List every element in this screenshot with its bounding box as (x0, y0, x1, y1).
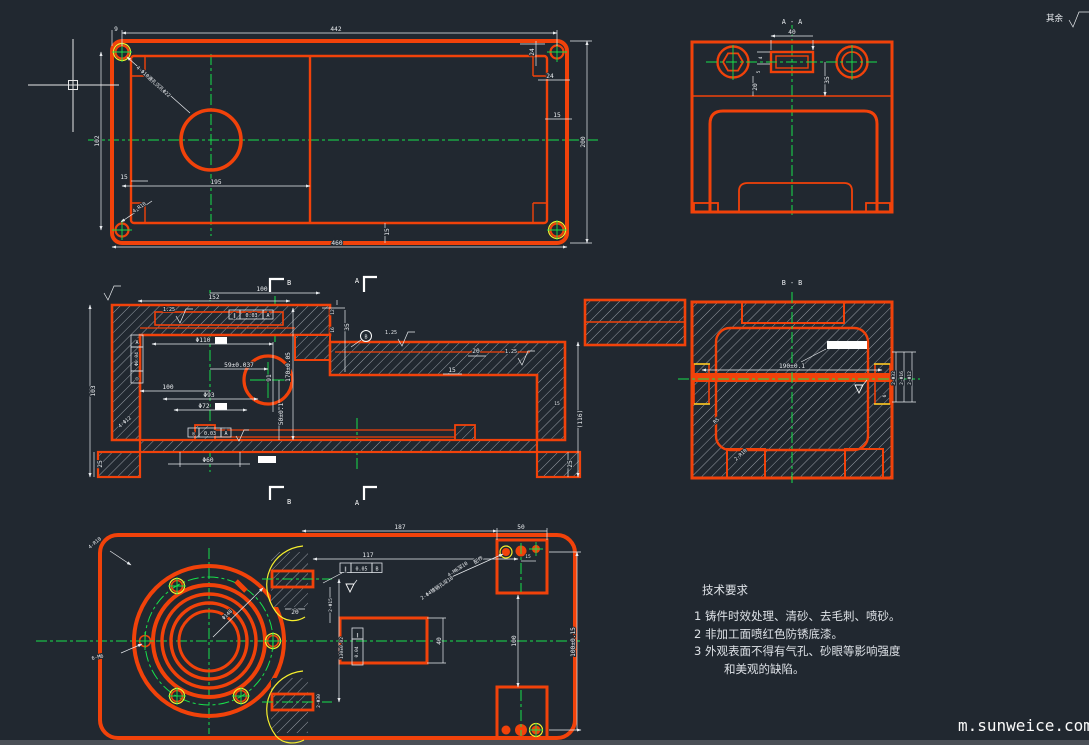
section-marker-b: B (287, 279, 291, 287)
section-marker-b: B (287, 498, 291, 506)
dim-label: 187 (394, 524, 405, 531)
dim-label: 15 (120, 174, 128, 181)
tech-req-line: 2 非加工面喷红色防锈底漆。 (694, 626, 974, 644)
dim-label: 40 (788, 29, 796, 36)
dim-label: Φ110 (196, 337, 211, 344)
dim-label: 15 (553, 112, 561, 119)
viewport-bottom-strip (0, 740, 1089, 745)
dim-label: (116) (577, 410, 584, 429)
gdt-value: 0.03 (245, 313, 257, 319)
dim-label: 5 (756, 70, 762, 73)
dim-label: 100 (511, 635, 518, 646)
tech-req-title: 技术要求 (702, 582, 974, 600)
gdt-symbol: ∥ (356, 633, 358, 639)
gdt-value: 0.05 (355, 567, 367, 573)
dim-label: 2-Φ32 (891, 371, 897, 385)
dim-label: Φ93 (203, 392, 214, 399)
dim-label: 130±0.02 (339, 637, 345, 659)
tech-req-line: 和美观的缺陷。 (724, 661, 974, 679)
roughness-label: 1.25 (505, 349, 517, 355)
dim-label: 2-Φ16 (899, 371, 905, 385)
note-label: 其余 (1046, 13, 1064, 24)
roughness-label: 1.25 (385, 330, 397, 336)
dim-label: Φ60 (202, 457, 213, 464)
tech-req-line: 1 铸件时效处理、清砂、去毛刺、喷砂。 (694, 608, 974, 626)
dim-label: 15 (448, 367, 456, 374)
dim-label: 50±0.1 (278, 403, 285, 426)
gdt-symbol: ∥ (233, 313, 236, 319)
dim-label: 170±0.05 (285, 352, 292, 382)
dim-label: 20 (752, 83, 759, 91)
dim-label: 195 (210, 179, 221, 186)
watermark: m.sunweice.com (958, 716, 1089, 735)
dim-label: 2-Φ30 (316, 694, 322, 708)
dim-label: 24 (529, 48, 536, 56)
gdt-datum: B (375, 567, 378, 573)
dim-label: 4 (758, 56, 764, 59)
dim-label: 100 (162, 384, 173, 391)
blocked-tolerance (215, 403, 227, 410)
section-title: A - A (782, 18, 802, 26)
dim-label: 15 (554, 401, 560, 407)
roughness-label: 1.25 (163, 307, 175, 313)
blocked-tolerance (215, 337, 227, 344)
dim-label: 152 (208, 294, 219, 301)
datum-label: B (364, 335, 367, 341)
dim-label: 16 (330, 327, 336, 333)
dim-label: 190±0.1 (779, 363, 805, 370)
dim-label: 9 (114, 26, 118, 33)
dim-label: 442 (330, 26, 341, 33)
dim-label: Φ72 (198, 403, 209, 410)
tech-req-line: 3 外观表面不得有气孔、砂眼等影响强度 (694, 643, 974, 661)
gdt-symbol: ◎ (135, 376, 138, 382)
dim-label: 50 (517, 524, 525, 531)
dim-label: 200 (580, 136, 587, 147)
gdt-datum: A (266, 313, 269, 319)
dim-label: 6 (882, 394, 888, 397)
section-bb-view: B - B 190±0.1 2-Φ32 2-Φ16 2-Φ12 6 R5 2-R… (678, 279, 920, 486)
gdt-value: 0.04 (354, 646, 360, 657)
dim-label: 25 (97, 460, 104, 468)
dim-label: 25 (567, 460, 574, 468)
gdt-value: 0.03 (204, 431, 216, 437)
dim-label: 59±0.037 (224, 362, 254, 369)
dim-label: 24 (546, 73, 554, 80)
dim-label: 15 (525, 554, 531, 560)
dim-label: 100±0.15 (570, 627, 577, 657)
technical-requirements: 技术要求 1 铸件时效处理、清砂、去毛刺、喷砂。 2 非加工面喷红色防锈底漆。 … (694, 582, 974, 679)
dim-label: 2-Φ12 (907, 371, 913, 385)
dim-label: 103 (90, 385, 97, 396)
gdt-symbol: ∥ (344, 567, 347, 573)
dim-label: 2-Φ15 (328, 598, 334, 612)
cad-model-space: 442 9 24 24 15 200 102 15 195 460 15 4-Φ… (0, 0, 1089, 745)
dim-label: 40 (436, 637, 443, 645)
blocked-annotation (827, 341, 867, 349)
gdt-symbol: ◎ (192, 431, 195, 437)
gdt-value: Φ0.04 (134, 352, 140, 366)
gdt-datum: A (224, 431, 227, 437)
section-title: B - B (782, 279, 802, 287)
dim-label: 100 (256, 286, 267, 293)
dim-label: 20 (291, 609, 299, 616)
dim-label: 35 (824, 76, 831, 84)
dim-label: 460 (331, 240, 342, 247)
gdt-datum: A (135, 340, 138, 346)
dim-label: 35 (344, 323, 351, 331)
dim-label: 12 (330, 309, 336, 315)
dim-label: 117 (362, 552, 373, 559)
blocked-tolerance (258, 456, 276, 463)
dim-label: 91 (266, 374, 273, 382)
dim-label: 15 (384, 228, 391, 236)
dim-label: 20 (472, 348, 480, 355)
dim-label: 102 (94, 135, 101, 146)
